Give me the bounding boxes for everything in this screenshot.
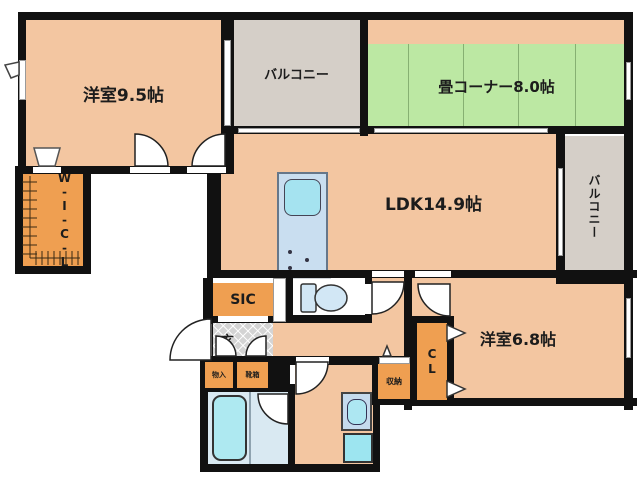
door-arc-bath bbox=[258, 394, 288, 424]
door-arc-bedroom-second bbox=[418, 284, 450, 316]
toilet-bowl-icon bbox=[315, 285, 347, 311]
room-label-tatami: 畳コーナー8.0帖 bbox=[438, 76, 555, 97]
storage-door-marker bbox=[383, 346, 391, 356]
entry-door-arc bbox=[170, 319, 211, 360]
closet-fold-door-top bbox=[447, 325, 465, 341]
fixtures-layer bbox=[0, 0, 640, 480]
closet-fold-door-bottom bbox=[447, 381, 465, 397]
door-arc-washroom bbox=[296, 362, 328, 394]
wicl-door-panel bbox=[34, 148, 60, 166]
wicl-hanger-hatch bbox=[22, 176, 80, 265]
door-arc-toilet bbox=[372, 282, 404, 314]
toilet-tank-icon bbox=[301, 284, 316, 312]
floor-plan: 洋室9.5帖 バルコニー 畳コーナー8.0帖 LDK14.9帖 バルコニー W-… bbox=[0, 0, 640, 480]
door-arc-bedroom-main-left bbox=[135, 134, 168, 166]
door-arc-entrance-cabinet-left bbox=[216, 336, 236, 356]
door-arc-entrance-cabinet-right bbox=[246, 336, 266, 356]
window-flag-symbol bbox=[5, 62, 19, 78]
door-arc-bedroom-main-right bbox=[192, 134, 225, 166]
